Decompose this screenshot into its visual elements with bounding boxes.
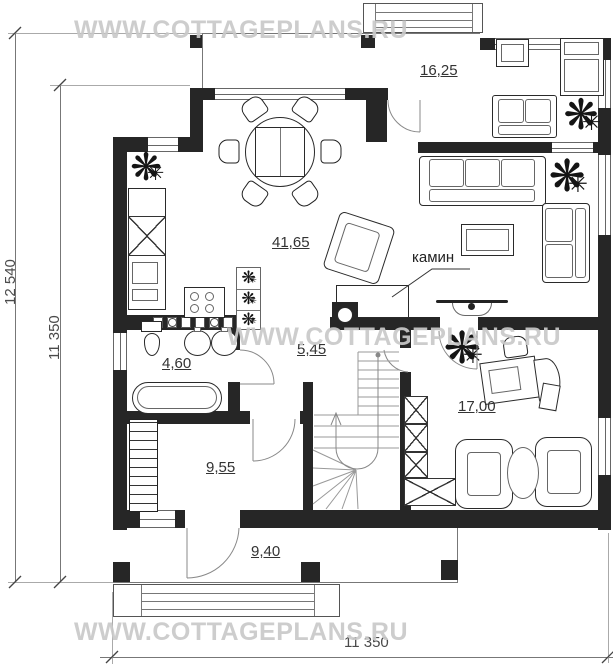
dim-line-bottom [100, 657, 613, 658]
bathtub [132, 382, 222, 414]
area-label-bedroom: 16,25 [420, 62, 458, 79]
watermark-top: WWW.COTTAGEPLANS.RU [74, 16, 408, 45]
stove [184, 287, 225, 318]
floor-plan: WWW.COTTAGEPLANS.RU WWW.COTTAGEPLANS.RU … [0, 0, 613, 672]
sofa-corner [542, 203, 590, 283]
dining-chair [219, 140, 240, 164]
porch-edge [113, 582, 458, 583]
wardrobe-icon [404, 478, 456, 506]
wall-bedroom-left [366, 100, 387, 142]
terrace-door-opening [388, 88, 420, 100]
area-label-porch: 9,40 [251, 543, 280, 560]
window-bathroom [113, 333, 127, 370]
porch-column [301, 562, 320, 582]
porch-column [441, 560, 458, 580]
coffee-table [461, 224, 514, 256]
dresser [496, 39, 529, 67]
dim-left-inner: 11 350 [46, 315, 63, 360]
watermark-bottom: WWW.COTTAGEPLANS.RU [74, 618, 408, 647]
porch-column [113, 562, 130, 582]
wardrobe-icon [404, 424, 428, 452]
plant-icon [560, 93, 602, 137]
fireplace-label: камин [412, 249, 454, 266]
wardrobe-icon [404, 452, 428, 478]
wall-bedroom-living [418, 142, 552, 153]
plant-icon [238, 268, 259, 287]
area-label-bathroom: 4,60 [162, 355, 191, 372]
sofa-large [419, 156, 546, 206]
entrance-door-opening [185, 510, 240, 528]
area-label-study: 17,00 [458, 398, 496, 415]
area-label-utility: 9,55 [206, 459, 235, 476]
dim-line-left-outer [15, 33, 16, 582]
armchair [322, 211, 396, 286]
fridge-icon [128, 216, 166, 256]
radiator [129, 419, 158, 512]
sink [184, 330, 211, 356]
armchair [535, 437, 592, 507]
plant-icon [126, 148, 166, 188]
window-dining [215, 88, 345, 100]
dining-chair [321, 140, 342, 164]
plant-icon [544, 155, 590, 199]
window-living [598, 155, 611, 235]
toilet [141, 321, 162, 332]
wardrobe-icon [404, 396, 428, 424]
window-study [598, 418, 611, 475]
porch-steps [113, 584, 340, 617]
bed [560, 38, 604, 96]
plant-icon [238, 289, 259, 308]
watermark-middle: WWW.COTTAGEPLANS.RU [227, 323, 561, 352]
armchair [455, 439, 513, 509]
bedroom-sofa [492, 95, 557, 138]
area-label-living: 41,65 [272, 234, 310, 251]
dim-left-outer: 12 540 [2, 259, 19, 305]
wall-stairs-left [303, 382, 313, 510]
rug [507, 447, 539, 499]
window-utility [140, 510, 175, 528]
